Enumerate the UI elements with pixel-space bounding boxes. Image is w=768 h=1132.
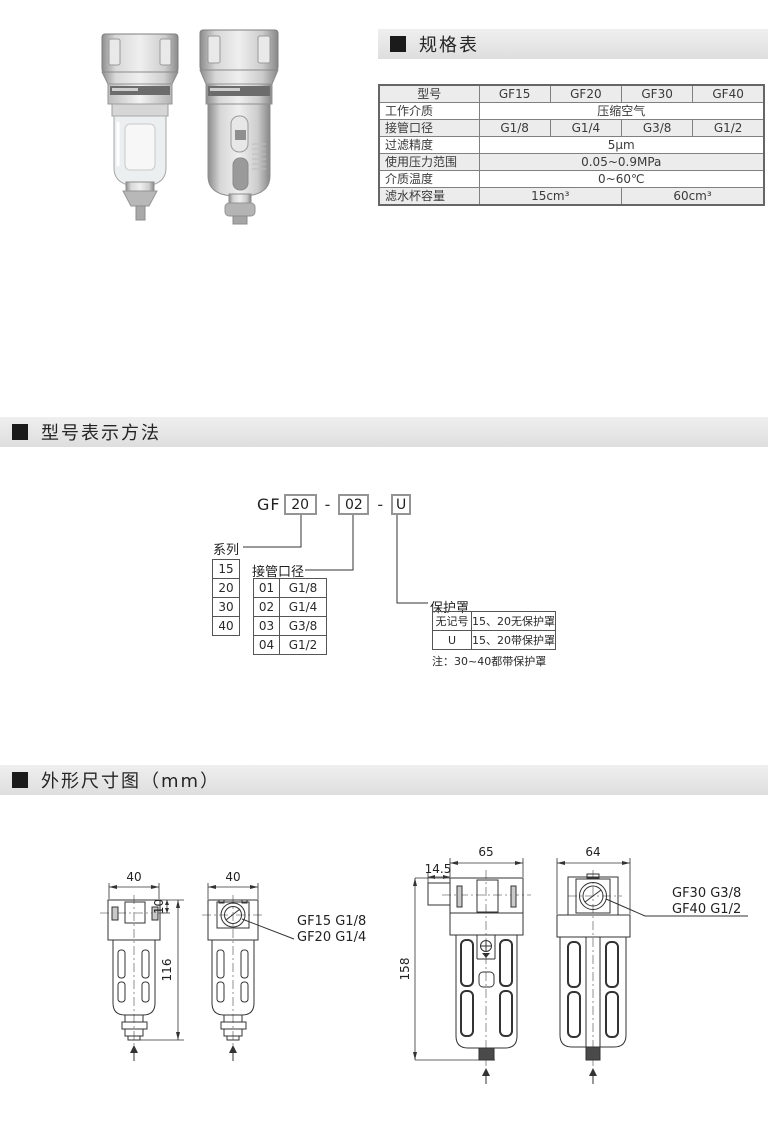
spec-value: G1/8 (479, 120, 550, 137)
spec-value: 压缩空气 (479, 103, 764, 120)
dim-height-small: 116 (160, 959, 174, 982)
table-row: 滤水杯容量 15cm³ 60cm³ (379, 188, 764, 206)
port-code: 01 (254, 579, 280, 598)
model-dash: - (377, 495, 383, 514)
port-code: 02 (254, 598, 280, 617)
callout-gf20: GF20 G1/4 (297, 930, 366, 945)
spec-value: G1/4 (550, 120, 621, 137)
dim-front-width-large: 65 (478, 845, 493, 859)
dims-section-header: 外形尺寸图（mm） (0, 765, 768, 795)
callout-gf30: GF30 G3/8 (672, 886, 741, 901)
series-option: 20 (213, 579, 240, 598)
table-row: 型号 GF15 GF20 GF30 GF40 (379, 85, 764, 103)
cover-code: U (433, 631, 472, 650)
callout-gf40: GF40 G1/2 (672, 902, 741, 917)
spec-value: 15cm³ (479, 188, 622, 206)
spec-row-label: 工作介质 (379, 103, 479, 120)
small-filter-cap (102, 34, 178, 84)
table-row: 过滤精度 5μm (379, 137, 764, 154)
callout-gf15: GF15 G1/8 (297, 914, 366, 929)
cover-desc: 15、20无保护罩 (472, 612, 556, 631)
dim-side-width-large: 64 (585, 845, 600, 859)
spec-row-label: 型号 (379, 85, 479, 103)
dim-port-depth: 10 (152, 899, 166, 914)
product-photo-large-filter (196, 26, 282, 226)
model-cell: GF20 (550, 85, 621, 103)
spec-row-label: 滤水杯容量 (379, 188, 479, 206)
spec-value: G1/2 (693, 120, 764, 137)
large-filter-body-band (206, 84, 272, 104)
series-option: 40 (213, 617, 240, 636)
section-square-icon (390, 36, 406, 52)
series-label: 系列 (213, 539, 239, 558)
model-cell: GF15 (479, 85, 550, 103)
model-cell: GF40 (693, 85, 764, 103)
spec-value: 60cm³ (622, 188, 765, 206)
dims-section-title: 外形尺寸图（mm） (41, 767, 220, 793)
cover-code: 无记号 (433, 612, 472, 631)
port-size: G1/2 (280, 636, 327, 655)
spec-row-label: 过滤精度 (379, 137, 479, 154)
model-code-row: GF 20 - 02 - U (257, 494, 411, 515)
large-filter-cap (200, 30, 278, 84)
port-table: 01 G1/8 02 G1/4 03 G3/8 04 G1/2 (253, 578, 327, 655)
dimension-drawing-small: 40 10 116 40 (90, 855, 400, 1110)
spec-value: 5μm (479, 137, 764, 154)
table-row: 使用压力范围 0.05~0.9MPa (379, 154, 764, 171)
model-prefix: GF (257, 495, 281, 514)
cover-note: 注：30~40都带保护罩 (432, 653, 546, 669)
port-code: 04 (254, 636, 280, 655)
dim-side-width-small: 40 (225, 870, 240, 884)
port-size: G1/8 (280, 579, 327, 598)
spec-value: 0.05~0.9MPa (479, 154, 764, 171)
large-filter-drain (225, 194, 255, 224)
series-table: 15 20 30 40 (212, 559, 240, 636)
small-filter-body-band (108, 84, 172, 104)
model-cell: GF30 (622, 85, 693, 103)
spec-row-label: 介质温度 (379, 171, 479, 188)
port-code: 03 (254, 617, 280, 636)
table-row: 接管口径 G1/8 G1/4 G3/8 G1/2 (379, 120, 764, 137)
small-filter-drain (123, 182, 157, 220)
dim-height-large: 158 (400, 958, 412, 981)
table-row: 工作介质 压缩空气 (379, 103, 764, 120)
model-port-box: 02 (338, 494, 369, 515)
spec-value: 0~60℃ (479, 171, 764, 188)
section-square-icon (12, 424, 28, 440)
series-option: 30 (213, 598, 240, 617)
product-photo-small-filter (94, 30, 184, 222)
small-filter-transparent-bowl (112, 104, 168, 186)
section-square-icon (12, 772, 28, 788)
table-row: 介质温度 0~60℃ (379, 171, 764, 188)
dim-front-width-small: 40 (126, 870, 141, 884)
model-section-header: 型号表示方法 (0, 417, 768, 447)
model-section-title: 型号表示方法 (41, 419, 161, 445)
spec-section-header: 规格表 (378, 29, 768, 59)
spec-value: G3/8 (622, 120, 693, 137)
dim-bracket: 14.5 (425, 862, 452, 876)
spec-section-title: 规格表 (419, 31, 479, 57)
large-filter-metal-bowl (208, 104, 270, 196)
cover-desc: 15、20带保护罩 (472, 631, 556, 650)
catalog-page: 规格表 型号 GF15 GF20 GF30 GF40 工作介质 压缩空气 接管口… (0, 0, 768, 1132)
spec-row-label: 接管口径 (379, 120, 479, 137)
series-option: 15 (213, 560, 240, 579)
model-dash: - (325, 495, 331, 514)
port-size: G3/8 (280, 617, 327, 636)
cover-table: 无记号 15、20无保护罩 U 15、20带保护罩 (432, 611, 556, 650)
dimension-drawing-large: 65 14.5 158 64 (400, 840, 768, 1110)
spec-row-label: 使用压力范围 (379, 154, 479, 171)
port-size: G1/4 (280, 598, 327, 617)
model-cover-box: U (391, 494, 411, 515)
model-size-box: 20 (284, 494, 317, 515)
spec-table: 型号 GF15 GF20 GF30 GF40 工作介质 压缩空气 接管口径 G1… (378, 84, 765, 206)
